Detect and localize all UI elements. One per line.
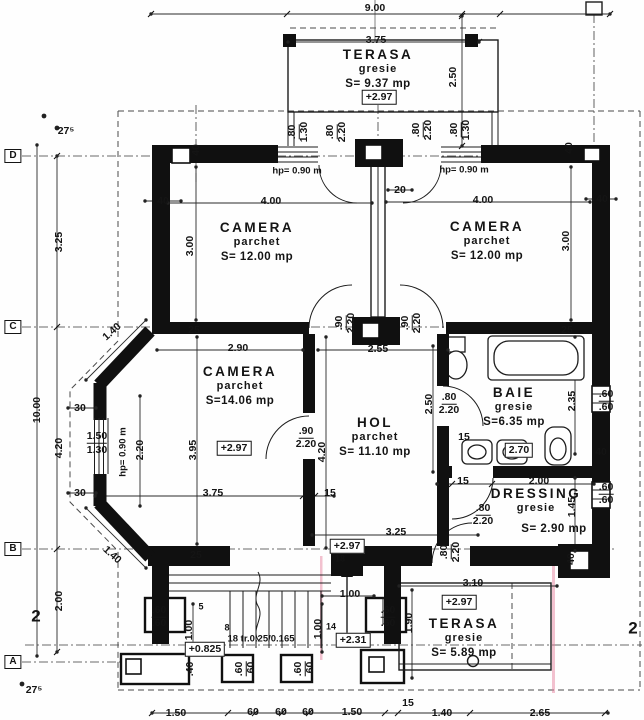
dim-endpoint — [431, 344, 434, 347]
elevation-label: +2.97 — [330, 539, 365, 554]
room-finish: parchet — [339, 431, 411, 443]
scan-artifact — [552, 553, 555, 693]
dim-label: 2.00 — [529, 476, 549, 487]
elevation-label: +2.97 — [442, 595, 477, 610]
floor-plan-sheet: TERASA gresie S= 9.37 mp CAMERA parchet … — [0, 0, 644, 720]
room-name: TERASA — [429, 616, 500, 631]
dim-endpoint — [93, 494, 96, 497]
dim-label: .80 — [442, 392, 457, 405]
dim-label: 1.90 — [404, 613, 415, 633]
dim-endpoint — [584, 197, 587, 200]
dim-label: 1.50 — [87, 431, 107, 444]
dim-endpoint — [460, 144, 463, 147]
dim-endpoint — [84, 506, 87, 509]
axis-box-top-right — [586, 2, 602, 15]
dim-endpoint — [194, 318, 197, 321]
dim-label: 9.00 — [365, 3, 385, 14]
dim-endpoint — [320, 602, 323, 605]
dim-label: .60 — [305, 662, 316, 677]
dim-label: 2.50 — [424, 394, 435, 414]
dim-endpoint — [143, 199, 146, 202]
dim-label: 1.30 — [87, 445, 107, 456]
dim-endpoint — [397, 584, 400, 587]
dim-label: 3.25 — [386, 527, 406, 538]
dim-endpoint — [324, 335, 327, 338]
dim-endpoint — [384, 200, 387, 203]
dim-label: 2.20 — [439, 405, 459, 416]
dim-label: 4.00 — [261, 196, 281, 207]
room-finish: parchet — [220, 236, 294, 248]
dim-endpoint — [477, 40, 480, 43]
dim-label: 60 — [302, 707, 314, 718]
room-label-camera-right: CAMERA parchet S= 12.00 mp — [450, 219, 524, 262]
dim-endpoint — [372, 594, 375, 597]
dim-label: 5 — [198, 603, 203, 612]
dim-endpoint — [386, 188, 389, 191]
dim-label: 40 — [191, 144, 202, 156]
dim-endpoint — [155, 348, 158, 351]
room-area: S= 9.37 mp — [343, 78, 414, 90]
room-area: S= 5.89 mp — [429, 647, 500, 659]
dim-endpoint — [35, 654, 38, 657]
dim-label: 4.20 — [317, 442, 328, 462]
dim-label: 20 — [394, 185, 406, 196]
dim-endpoint — [149, 12, 152, 15]
dim-endpoint — [614, 197, 617, 200]
dim-label: 2.20 — [451, 542, 462, 562]
dim-endpoint — [286, 40, 289, 43]
dim-label: 4.20 — [54, 438, 65, 458]
room-label-terasa-top: TERASA gresie S= 9.37 mp — [343, 47, 414, 90]
dim-endpoint — [179, 199, 182, 202]
dim-label: 27⁵ — [26, 685, 43, 696]
dim-label: 2.20 — [346, 313, 357, 333]
dim-label: 3.00 — [561, 231, 572, 251]
dim-label: 3.00 — [185, 236, 196, 256]
dim-endpoint — [410, 188, 413, 191]
dim-label: 3.10 — [463, 578, 483, 589]
axis-row-d: D — [4, 149, 21, 163]
dim-label: 60 — [275, 707, 287, 718]
dim-endpoint — [431, 470, 434, 473]
toilet-tank — [448, 337, 465, 352]
axis-row-b: B — [4, 542, 21, 556]
axis-row-a: A — [4, 655, 21, 669]
dim-label: .60 — [381, 605, 396, 618]
dim-label: .60 — [599, 402, 614, 413]
room-label-camera-middle: CAMERA parchet S=14.06 mp — [203, 364, 277, 407]
dim-label: 1.30 — [299, 122, 310, 142]
chimney-shaft — [371, 163, 385, 317]
dim-label: 1.00 — [340, 589, 360, 600]
dim-label: 2.20 — [296, 439, 316, 450]
window-sill-note: hp= 0.90 m — [272, 166, 321, 176]
dim-label: 40 — [157, 196, 169, 207]
dim-endpoint — [573, 452, 576, 455]
dim-label: 25 — [561, 325, 573, 336]
window-sill-note: hp= 0.90 m — [118, 427, 128, 476]
dim-label: .40 — [185, 662, 196, 677]
room-label-terasa-bottom: TERASA gresie S= 5.89 mp — [429, 616, 500, 659]
dim-label: 15 — [458, 432, 470, 443]
dim-endpoint — [301, 348, 304, 351]
dim-endpoint — [35, 143, 38, 146]
dim-endpoint — [588, 200, 591, 203]
dim-endpoint — [573, 476, 576, 479]
dim-label: 27⁵ — [58, 126, 75, 137]
dim-label: 15 — [402, 698, 414, 709]
room-finish: parchet — [450, 235, 524, 247]
dim-endpoint — [324, 546, 327, 549]
dim-label: 2.90 — [228, 343, 248, 354]
room-area: S=6.35 mp — [483, 416, 545, 428]
floor-plan-drawing — [0, 0, 644, 720]
dim-label: 14 — [326, 623, 336, 632]
elevation-label: +2.31 — [336, 633, 371, 648]
dim-label: 8 — [224, 624, 229, 633]
dim-endpoint — [446, 348, 449, 351]
axis-row-c: C — [4, 320, 21, 334]
dim-label: 15 — [324, 488, 336, 499]
dim-endpoint — [191, 602, 194, 605]
dim-endpoint — [606, 711, 609, 714]
dim-endpoint — [555, 584, 558, 587]
dim-label: 18 — [335, 555, 345, 564]
dim-endpoint — [569, 318, 572, 321]
dim-label: 30 — [74, 403, 86, 414]
dim-endpoint — [410, 588, 413, 591]
dim-label: 1.50 — [166, 708, 186, 719]
elevation-label: +0.825 — [185, 642, 225, 657]
window-sill-note: hp= 0.90 m — [439, 165, 488, 175]
dim-endpoint — [94, 406, 97, 409]
dim-label: 1.50 — [342, 707, 362, 718]
dim-label: 3.75 — [203, 488, 223, 499]
dim-label: 2.20 — [337, 122, 348, 142]
dim-endpoint — [476, 533, 479, 536]
dim-label: 1.00 — [313, 619, 324, 639]
dim-endpoint — [144, 566, 147, 569]
dim-label: 2.55 — [368, 344, 388, 355]
dim-endpoint — [320, 650, 323, 653]
dim-endpoint — [194, 165, 197, 168]
dim-label: 3.75 — [366, 35, 386, 46]
dim-endpoint — [320, 594, 323, 597]
dim-label: .60 — [599, 482, 614, 495]
room-label-dressing: DRESSING gresie S= 2.90 mp — [485, 486, 586, 535]
dim-label: 25 — [190, 550, 202, 561]
dim-label: 3.95 — [188, 440, 199, 460]
dim-endpoint — [138, 504, 141, 507]
dim-label: 2.70 — [505, 443, 533, 458]
elevation-label: +2.97 — [217, 441, 252, 456]
room-name: CAMERA — [220, 220, 294, 235]
room-finish: gresie — [485, 502, 586, 514]
dim-label: 4.00 — [473, 195, 493, 206]
dim-label: 40 — [564, 142, 575, 154]
dim-label: .60 — [599, 495, 614, 506]
dim-endpoint — [150, 711, 153, 714]
room-finish: gresie — [429, 632, 500, 644]
dim-label: 15 — [457, 476, 469, 487]
dim-label: 40 — [595, 447, 607, 458]
room-label-baie: BAIE gresie S=6.35 mp — [483, 385, 545, 428]
room-area: S=14.06 mp — [203, 395, 277, 407]
dim-endpoint — [55, 650, 58, 653]
dim-label: 10.00 — [32, 397, 43, 423]
dim-endpoint — [195, 542, 198, 545]
dim-endpoint — [410, 676, 413, 679]
room-finish: gresie — [343, 63, 414, 75]
dim-label: 2.65 — [530, 708, 550, 719]
room-name: TERASA — [343, 47, 414, 62]
room-name: CAMERA — [450, 219, 524, 234]
dim-endpoint — [84, 378, 87, 381]
room-area: S= 12.00 mp — [220, 251, 294, 263]
dim-label: 2.20 — [412, 313, 423, 333]
dim-endpoint — [138, 394, 141, 397]
room-finish: gresie — [483, 401, 545, 413]
dim-label: 25 — [188, 325, 200, 336]
dim-endpoint — [370, 201, 373, 204]
dim-endpoint — [66, 406, 69, 409]
dim-label: 60 — [247, 707, 259, 718]
dim-label: 1.30 — [461, 120, 472, 140]
dim-label: 2.00 — [54, 591, 65, 611]
dim-label: .60 — [599, 389, 614, 402]
dim-label: .90 — [299, 426, 314, 439]
room-name: CAMERA — [203, 364, 277, 379]
dim-endpoint — [310, 533, 313, 536]
room-area: S= 11.10 mp — [339, 446, 411, 458]
dim-label: 40 — [596, 194, 608, 205]
dim-endpoint — [195, 335, 198, 338]
dim-endpoint — [316, 348, 319, 351]
dim-endpoint — [94, 491, 97, 494]
dim-endpoint — [592, 482, 595, 485]
dim-endpoint — [144, 318, 147, 321]
room-label-camera-left: CAMERA parchet S= 12.00 mp — [220, 220, 294, 263]
room-finish: parchet — [203, 380, 277, 392]
axis-col-2: 2 — [31, 608, 40, 625]
dim-label: .60 — [381, 618, 396, 629]
dim-label: .60 — [246, 662, 257, 677]
dim-label: 40 — [566, 553, 577, 565]
dim-endpoint — [573, 335, 576, 338]
dim-label: 1.40 — [432, 708, 452, 719]
dim-label: 2.20 — [423, 120, 434, 140]
dim-endpoint — [435, 482, 438, 485]
dim-label: 3.25 — [54, 232, 65, 252]
dim-label: .60 — [152, 605, 167, 618]
dim-endpoint — [569, 165, 572, 168]
room-area: S= 12.00 mp — [450, 250, 524, 262]
dim-label: 2.20 — [135, 440, 146, 460]
dim-label: 1.00 — [184, 620, 195, 640]
dim-label: 2.35 — [567, 391, 578, 411]
room-name: BAIE — [483, 385, 545, 400]
dim-endpoint — [55, 154, 58, 157]
room-label-hol: HOL parchet S= 11.10 mp — [339, 415, 411, 458]
room-name: DRESSING — [485, 486, 586, 501]
room-area: S= 2.90 mp — [521, 523, 586, 535]
dim-endpoint — [608, 12, 611, 15]
dim-endpoint — [66, 491, 69, 494]
dim-label: .60 — [152, 618, 167, 629]
stair-note: 18 tr.0.25/0.165 — [227, 634, 294, 644]
room-name: HOL — [339, 415, 411, 430]
dim-label: 30 — [74, 488, 86, 499]
dim-endpoint — [460, 14, 463, 17]
elevation-label: +2.97 — [362, 90, 397, 105]
dim-label: 2.50 — [448, 67, 459, 87]
axis-col-2: 2 — [628, 620, 637, 637]
